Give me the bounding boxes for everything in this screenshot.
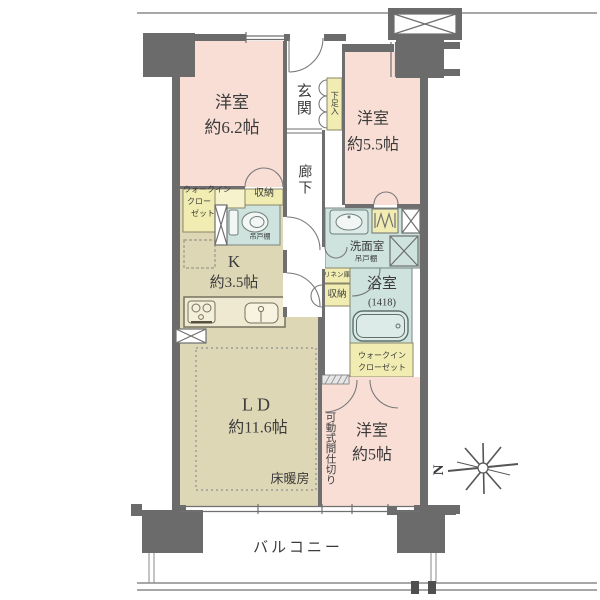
- storage1-label: 収納: [254, 189, 274, 200]
- bathroom-name: 浴室: [367, 277, 397, 293]
- corridor-floor: [287, 130, 322, 317]
- bathtub-icon: [353, 311, 408, 341]
- wic1-label-line2: クロー: [187, 198, 211, 206]
- site-boundary-line: [137, 12, 597, 14]
- shoe-folding-door: [319, 80, 327, 128]
- column-top-left: [143, 33, 195, 77]
- balcony-label: バルコニー: [253, 541, 343, 557]
- compass-north-letter: N: [432, 465, 448, 476]
- kitchen-sink-icon: [245, 303, 278, 323]
- shaft-washroom-teal: [390, 236, 418, 266]
- bedroom3-size: 約5帖: [352, 448, 392, 465]
- bedroom1-name: 洋室: [215, 94, 249, 112]
- living-dining-name: LD: [242, 396, 274, 415]
- column-bottom-right: [397, 510, 445, 553]
- wic1-label-line3: ゼット: [191, 210, 215, 218]
- kitchen-counter: [184, 297, 285, 327]
- wic2-label-line1: ウォークイン: [358, 352, 406, 360]
- living-dining-size: 約11.6帖: [228, 421, 287, 438]
- compass-star: [448, 443, 518, 494]
- bedroom3-floor: [322, 377, 420, 507]
- bathroom-size: (1418): [368, 297, 396, 308]
- column-top-right: [396, 40, 444, 78]
- balcony-railing: [137, 553, 597, 590]
- column-bottom-left: [142, 510, 203, 553]
- toilet-accordion-door: [215, 205, 227, 245]
- shoe-cabinet-label: 下足入: [330, 91, 338, 115]
- linen-label: リネン庫: [324, 273, 350, 280]
- front-door-arc: [289, 38, 323, 72]
- pipe-space-kitchen: [176, 329, 206, 343]
- bedroom2-name: 洋室: [357, 112, 389, 129]
- bedroom3-name: 洋室: [356, 424, 388, 441]
- wic2-label-line2: クローゼット: [358, 364, 406, 372]
- bedroom1-size: 約6.2帖: [204, 119, 259, 137]
- floor-plan: 洋室 約6.2帖 玄関 下足入 洋室 約5.5帖 廊下 ウォークイン クロー ゼ…: [0, 0, 600, 600]
- washer-box: [372, 209, 398, 233]
- movable-partition-label: 可動式間仕切り: [324, 411, 335, 485]
- kitchen-size: 約3.5帖: [210, 276, 259, 292]
- entrance-label: 玄関: [294, 83, 310, 117]
- washbasin-icon: [330, 210, 368, 234]
- corridor-label: 廊下: [296, 164, 311, 196]
- bedroom2-size: 約5.5帖: [347, 138, 399, 155]
- bedroom1-floor: [180, 41, 284, 187]
- stove-icon: [188, 301, 215, 324]
- pipe-space-washroom: [402, 209, 420, 233]
- toilet-shelf-label: 吊戸棚: [250, 233, 271, 240]
- elevator-shaft-box: [388, 8, 462, 40]
- partition-hatch: [322, 375, 349, 384]
- washroom-shelf-label: 吊戸棚: [355, 255, 378, 263]
- floor-heating-label: 床暖房: [270, 472, 309, 486]
- washroom-label: 洗面室: [350, 241, 385, 253]
- storage2-label: 収納: [327, 291, 346, 301]
- wic1-label-line1: ウォークイン: [183, 186, 231, 194]
- kitchen-name: K: [228, 253, 240, 271]
